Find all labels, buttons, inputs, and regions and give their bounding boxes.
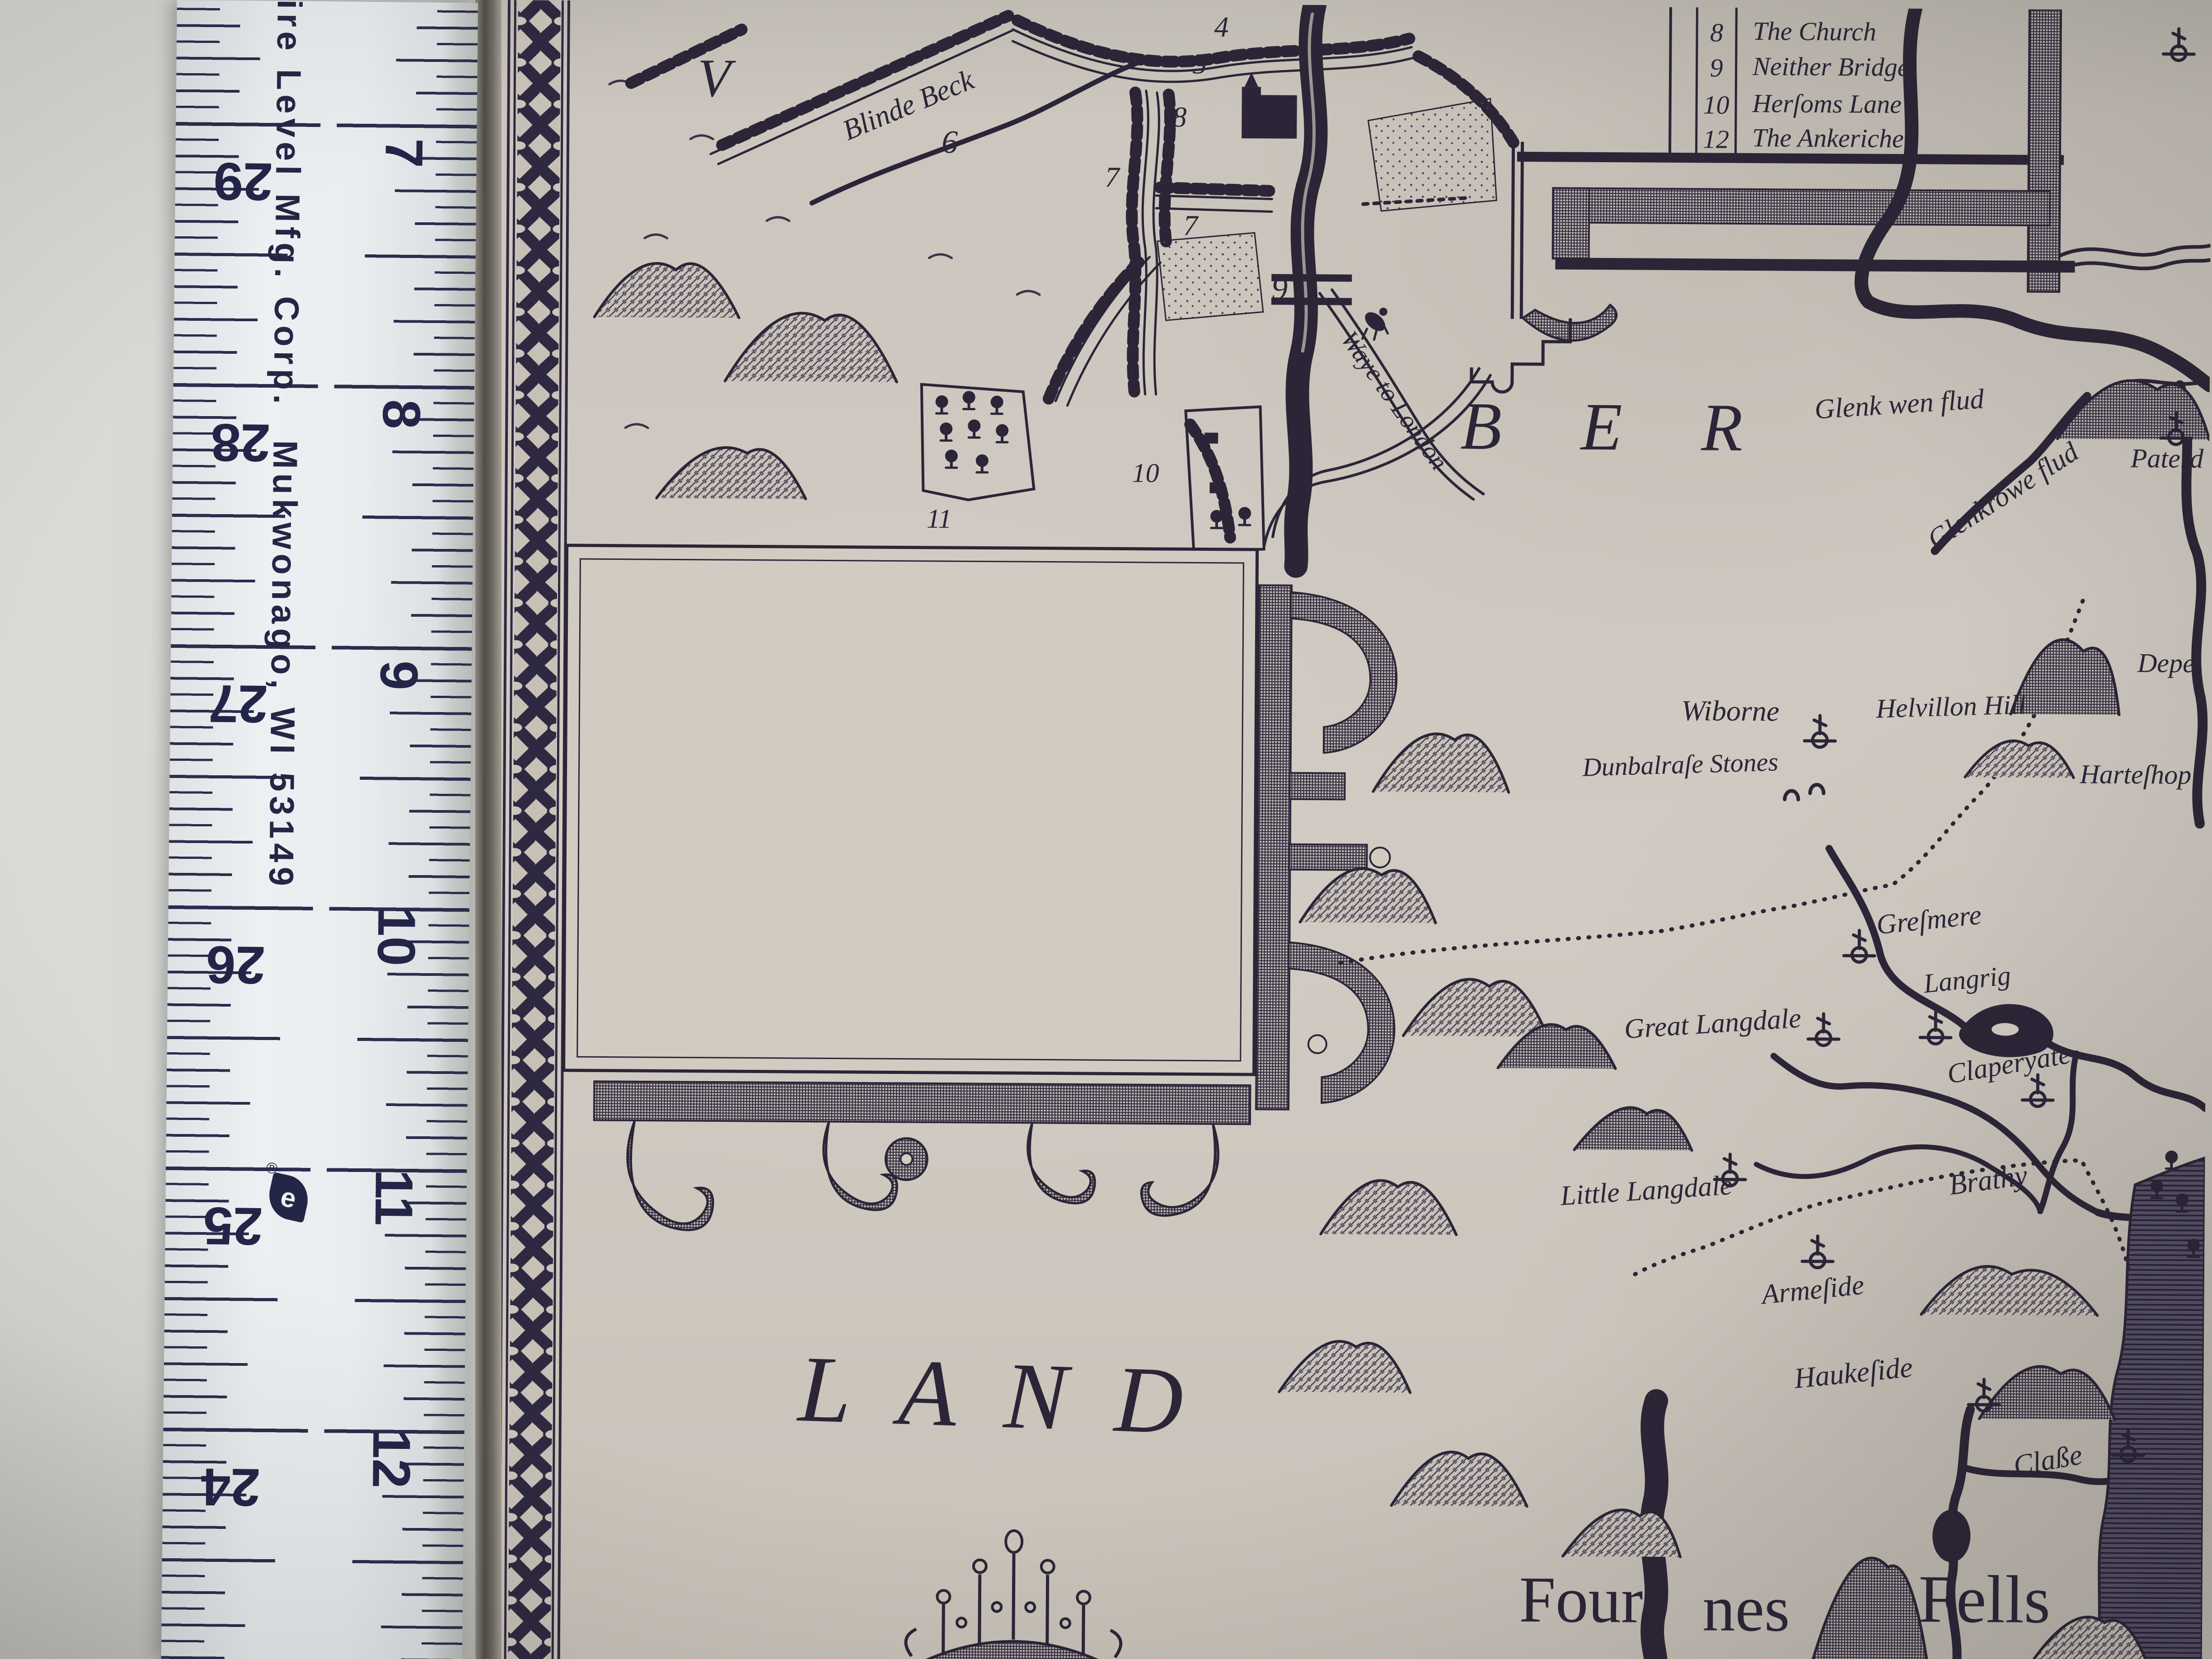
ruler-number-right: 7 (373, 138, 435, 168)
inset-mark-7: 7 (1105, 163, 1119, 192)
inset-mark-6: 6 (942, 126, 958, 158)
ruler-number-left: 27 (208, 673, 268, 735)
inset-mark-4: 4 (1214, 13, 1228, 42)
place-label-wiborne: Wiborne (1681, 696, 1779, 726)
ruler-number-left: 26 (206, 934, 266, 996)
legend-num: 8 (1701, 17, 1732, 47)
ruler-number-right: 12 (360, 1429, 422, 1489)
crown-ornament (906, 1530, 1121, 1659)
legend-name: The Church (1753, 16, 1876, 47)
inset-mark-8: 8 (1172, 103, 1186, 131)
ruler-number-left: 29 (213, 150, 273, 212)
photo-of-antique-map-with-ruler: 8 The Church 9 Neither Bridge 10 Herſoms… (0, 0, 2212, 1659)
legend-num: 12 (1700, 124, 1732, 154)
orchard-plot (921, 384, 1035, 501)
ruler-number-left: 28 (211, 412, 271, 473)
inset-letter-v: V (698, 51, 731, 105)
county-name-fragment-land: LAND (797, 1341, 1232, 1450)
church-building (1242, 72, 1297, 139)
ruler-number-left: 24 (201, 1456, 261, 1518)
ruler-number-right: 10 (365, 906, 427, 966)
legend-name: The Ankeriche (1752, 122, 1904, 154)
stone-circle-symbol (1785, 784, 1823, 800)
inset-mark-5: 5 (1192, 49, 1207, 78)
ruler-number-left: 25 (203, 1195, 263, 1257)
horseman-figure (1361, 308, 1389, 340)
ruler-tick-marks (161, 0, 478, 1659)
fells-label-fells: Fells (1918, 1565, 2051, 1634)
town-plan-inset (593, 0, 1514, 567)
place-label-harteshop: Harteſhop (2080, 760, 2191, 788)
place-label-depe: Depe (2137, 649, 2195, 677)
cartouche-bracket (1256, 585, 1397, 1110)
inset-mark-9: 9 (1271, 272, 1288, 305)
inset-mark-10: 10 (1132, 459, 1159, 487)
map-border-braid (498, 0, 570, 1659)
ruler-shadow-gap (475, 0, 501, 1659)
empty-cartouche (562, 545, 1397, 1234)
winandermere-lake (2095, 1158, 2205, 1659)
legend-num: 10 (1700, 89, 1732, 120)
legend-name: Herſoms Lane (1752, 88, 1902, 119)
cartouche-scrollwork (593, 1081, 1250, 1233)
fells-label-nes: nes (1702, 1576, 1790, 1642)
inset-mark-7b: 7 (1183, 211, 1198, 240)
logo-letter: e (264, 1172, 313, 1223)
place-label-dunbalrase-stones: Dunbalraſe Stones (1582, 749, 1779, 780)
folding-ruler: 29 28 27 26 25 24 7 8 9 10 11 12 pire Le… (161, 0, 478, 1659)
ruler-number-right: 8 (370, 399, 432, 429)
place-label-helvillon-hill: Helvillon Hill (1876, 691, 2026, 722)
ruler-number-right: 11 (363, 1169, 425, 1226)
legend-num: 9 (1701, 52, 1732, 83)
place-label-paterd: Paterd (2131, 445, 2203, 472)
ruler-number-right: 9 (368, 660, 430, 690)
county-name-fragment-ber: BER (1460, 392, 1822, 462)
empire-level-logo: ® e (268, 1151, 310, 1244)
legend-name: Neither Bridge (1753, 51, 1909, 82)
inset-mark-11: 11 (927, 505, 952, 532)
fells-label-four: Four (1519, 1567, 1643, 1634)
